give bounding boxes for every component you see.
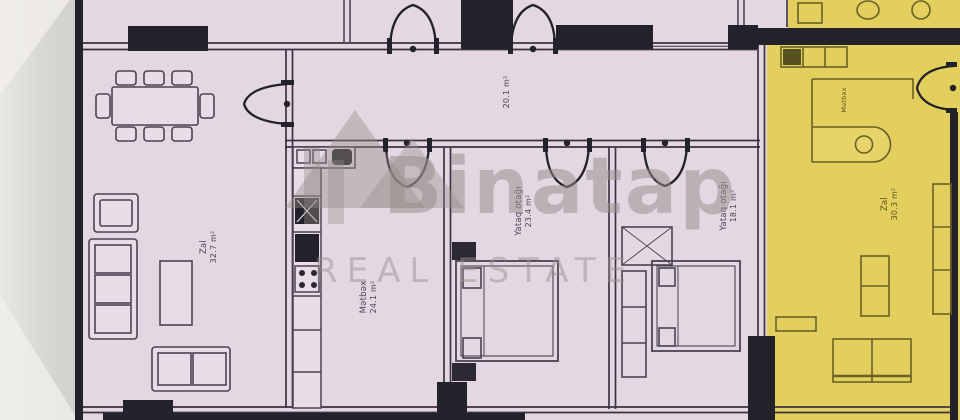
coffee-table: [160, 261, 192, 325]
watermark-tagline-text: REAL ESTATE: [314, 254, 635, 288]
left-outer-wall: [75, 0, 83, 420]
highlight-unit-top-wall: [757, 28, 960, 45]
window-living-bottom: [123, 400, 173, 414]
armchair: [94, 194, 138, 232]
room-label-highlight-kitchen: Mətbəx: [841, 87, 849, 112]
sofa-two-seat: [152, 347, 230, 391]
watermark-brand-text: Binatap: [383, 148, 737, 226]
room-label-hallway: 20.1 m²: [502, 76, 512, 109]
room-label-highlight-living: Zal 30.3 m²: [880, 188, 900, 221]
nightstand: [452, 363, 476, 381]
window-living-top: [128, 26, 208, 51]
room-label-living-room: Zal 32.7 m²: [199, 231, 219, 264]
sofa-three-seat: [89, 239, 137, 339]
floor-plan-screenshot: 20.1 m² Zal 32.7 m² Mətbəx 24.1 m² Yataq…: [0, 0, 960, 420]
